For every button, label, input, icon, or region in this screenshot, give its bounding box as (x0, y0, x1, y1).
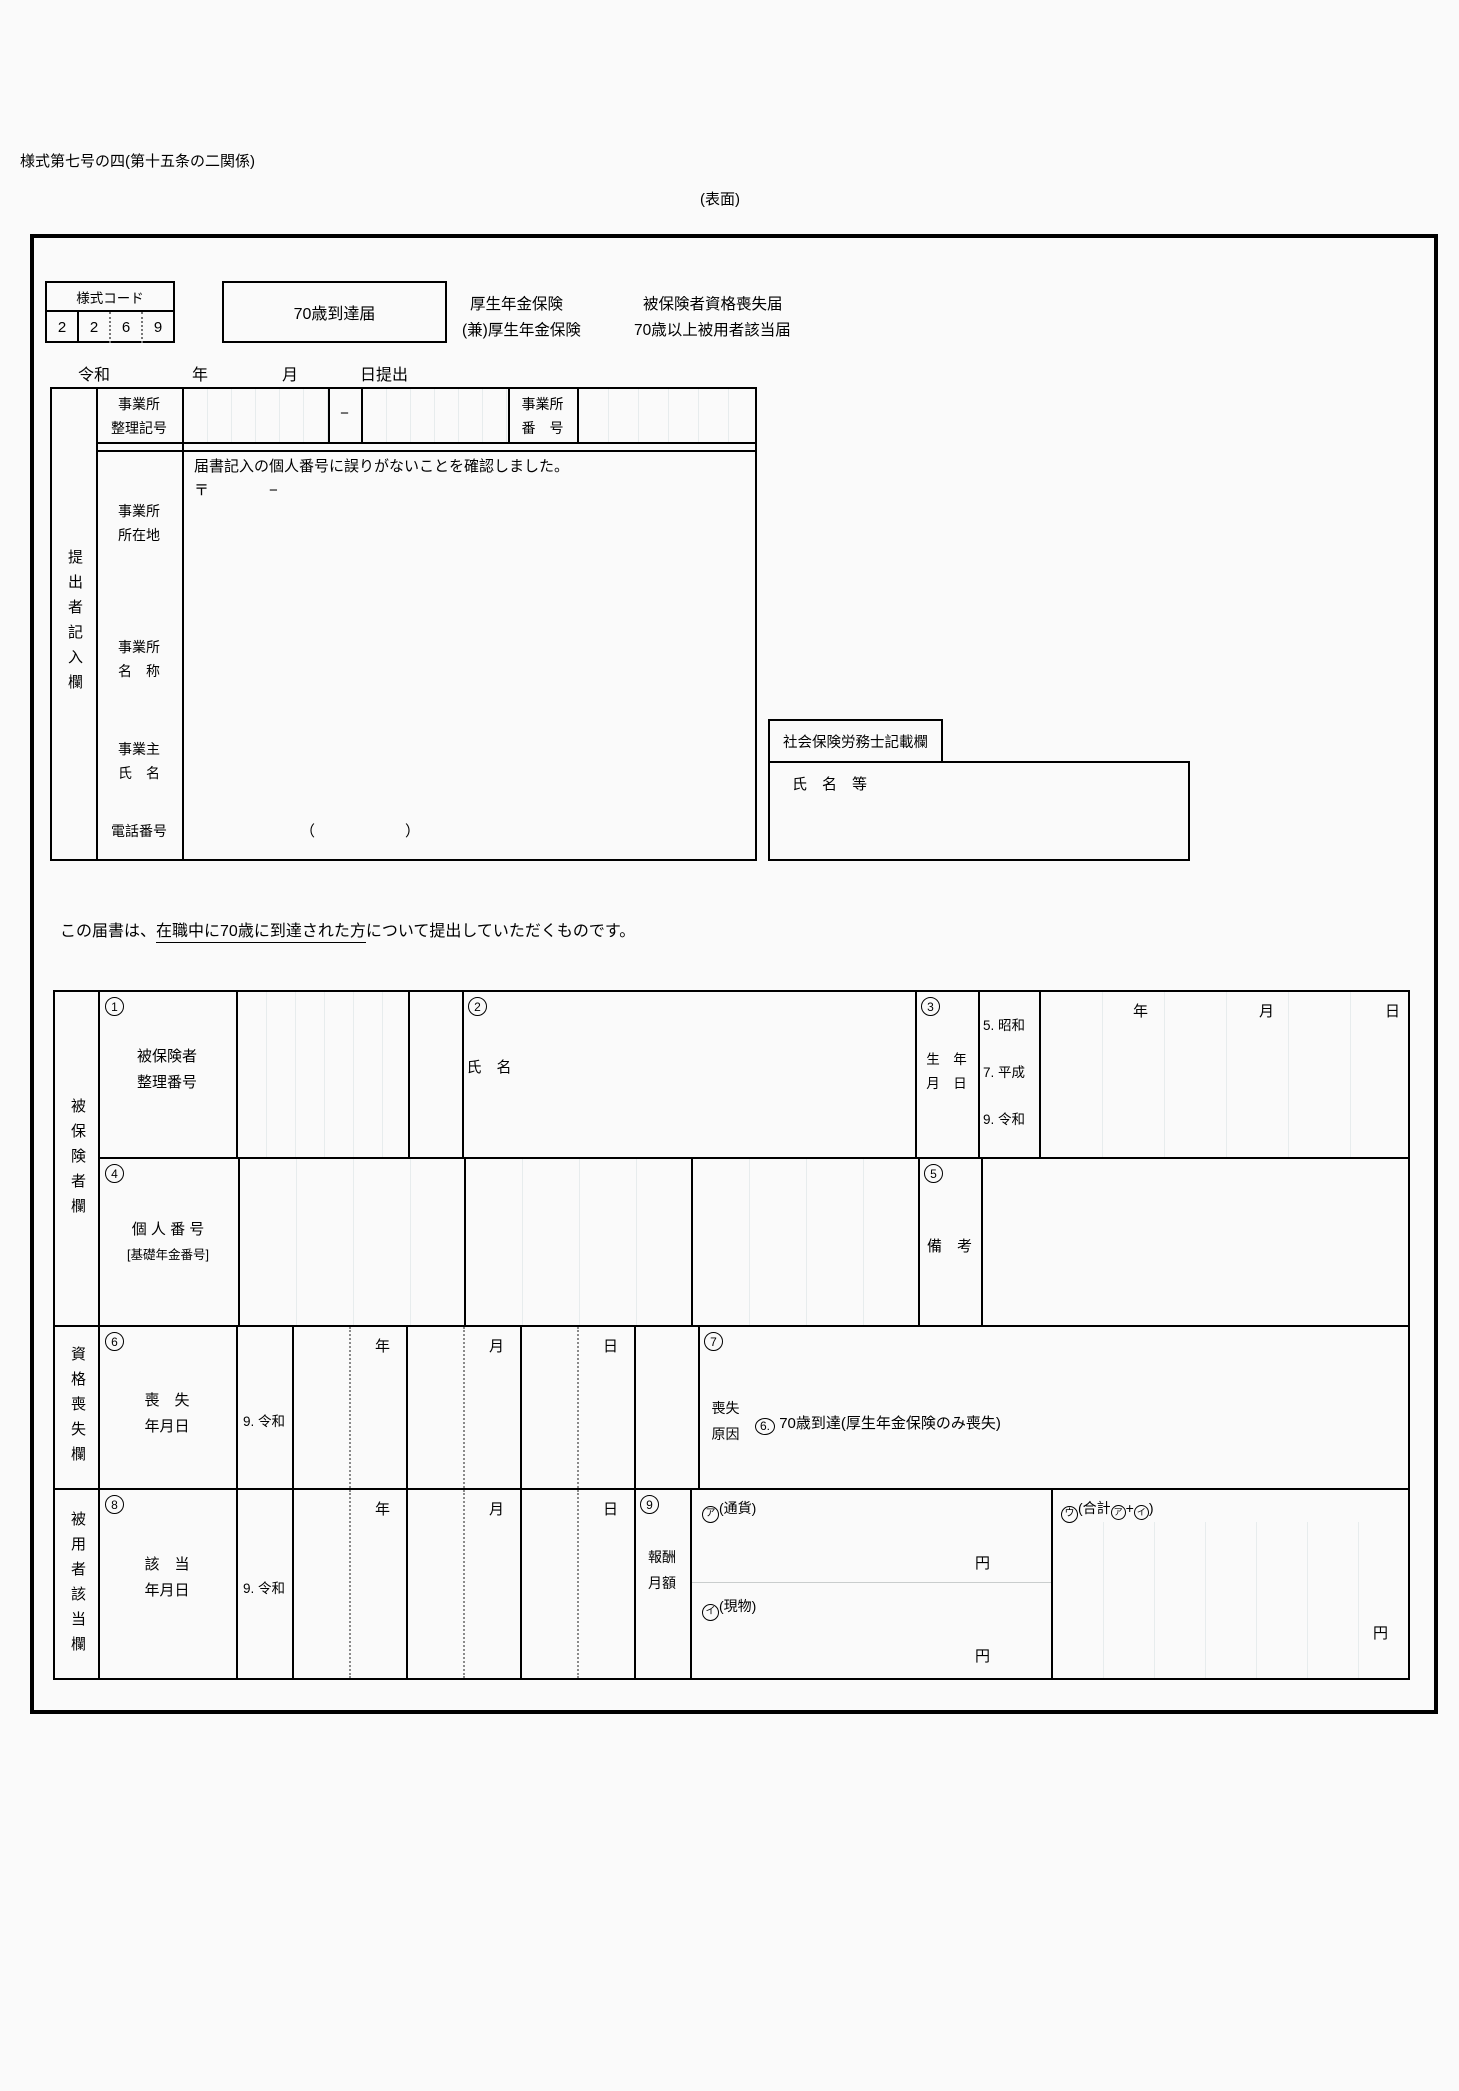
loss-reason-code: 6. (755, 1418, 775, 1435)
applicable-date-label: 該 当 年月日 (98, 1552, 236, 1604)
office-ref-code-label: 事業所 整理記号 (96, 392, 182, 440)
grid-line (96, 389, 98, 859)
currency-amount-yen: 円 (975, 1552, 990, 1573)
office-name-label: 事業所 名 称 (96, 635, 182, 683)
birth-date-label: 生 年 月 日 (915, 1048, 978, 1096)
loss-year-header: 年 (375, 1335, 390, 1356)
form-page: 様式第七号の四(第十五条の二関係) (表面) 様式コード 2 2 6 9 70歳… (0, 0, 1459, 2091)
grid-line (55, 1488, 1408, 1490)
office-ref-code-input-right[interactable] (363, 389, 508, 442)
circled-u-icon: ウ (1061, 1506, 1078, 1523)
notice-underlined: 在職中に70歳に到達された方 (156, 923, 366, 943)
birth-month-header: 月 (1259, 1000, 1274, 1021)
personal-number-input-1[interactable] (240, 1159, 464, 1325)
currency-amount-input[interactable] (692, 1512, 1051, 1582)
insured-name-input[interactable] (464, 992, 915, 1157)
notice-pre: この届書は、 (60, 923, 156, 940)
total-amount-label-pre: (合計 (1078, 1500, 1111, 1516)
loss-day-header: 日 (603, 1335, 618, 1356)
circled-1: 1 (105, 997, 124, 1016)
total-amount-yen: 円 (1373, 1622, 1388, 1643)
total-amount-label-post: ) (1149, 1500, 1154, 1516)
inkind-amount-yen: 円 (975, 1645, 990, 1666)
submit-date-day: 日提出 (360, 361, 408, 385)
side-label: (表面) (700, 188, 740, 209)
personal-number-input-3[interactable] (693, 1159, 918, 1325)
office-address-label: 事業所 所在地 (96, 499, 182, 547)
loss-month-header: 月 (489, 1335, 504, 1356)
circled-6: 6 (105, 1332, 124, 1351)
submit-date-month: 月 (282, 361, 298, 385)
submitter-table: 提出者記入欄 事業所 整理記号 − 事業所 番 号 届書記入の個人番号に誤りがな… (50, 387, 757, 861)
form-code-digit: 2 (47, 312, 77, 343)
birth-date-input[interactable] (1041, 992, 1408, 1157)
grid-line (96, 442, 755, 444)
sharoushi-box[interactable]: 氏 名 等 (768, 761, 1190, 861)
amount-divider-line (692, 1582, 1051, 1583)
insurance-line2-right: 70歳以上被用者該当届 (634, 318, 791, 340)
basic-pension-number-label: [基礎年金番号] (98, 1244, 238, 1263)
grid-line (634, 1327, 636, 1488)
total-amount-label: ウ(合計ア+イ) (1061, 1498, 1154, 1523)
applicable-year-header: 年 (375, 1498, 390, 1519)
total-amount-input[interactable] (1053, 1522, 1408, 1678)
circled-7: 7 (704, 1332, 723, 1351)
loss-reason-label: 喪失 原因 (698, 1395, 753, 1447)
office-name-input[interactable] (184, 635, 755, 735)
applicable-era-reiwa[interactable]: 9. 令和 (236, 1577, 292, 1597)
applicable-month-header: 月 (489, 1498, 504, 1519)
grid-line (96, 450, 755, 452)
insured-section-label: 被保険者欄 (67, 1098, 88, 1223)
form-code-box: 様式コード 2 2 6 9 (45, 281, 175, 343)
grid-line (408, 992, 410, 1157)
grid-line (978, 992, 980, 1157)
remarks-label: 備 考 (918, 1235, 981, 1256)
owner-name-input[interactable] (184, 737, 755, 817)
office-number-label: 事業所 番 号 (508, 392, 577, 440)
insurance-line2-left: (兼)厚生年金保険 (462, 318, 581, 340)
applicable-section-label: 被用者該当欄 (67, 1511, 88, 1661)
office-ref-code-dash: − (328, 405, 361, 422)
applicable-day-header: 日 (603, 1498, 618, 1519)
personal-number-input-2[interactable] (466, 1159, 691, 1325)
owner-name-label: 事業主 氏 名 (96, 737, 182, 785)
loss-date-label: 喪 失 年月日 (98, 1388, 236, 1440)
mynumber-confirm-note: 届書記入の個人番号に誤りがないことを確認しました。 (194, 455, 569, 476)
form-title-box: 70歳到達届 (222, 281, 447, 343)
circled-a-small-icon: ア (1111, 1505, 1126, 1520)
form-id-title: 様式第七号の四(第十五条の二関係) (20, 150, 255, 171)
grid-line (55, 1325, 1408, 1327)
remuneration-label: 報酬 月額 (634, 1544, 690, 1596)
circled-3: 3 (921, 997, 940, 1016)
circled-4: 4 (105, 1164, 124, 1183)
form-code-digit: 6 (109, 312, 141, 343)
birth-year-header: 年 (1133, 1000, 1148, 1021)
personal-number-label: 個 人 番 号 (98, 1218, 238, 1239)
insured-ref-number-label: 被保険者 整理番号 (98, 1044, 236, 1096)
loss-era-reiwa[interactable]: 9. 令和 (236, 1410, 292, 1430)
circled-9: 9 (640, 1495, 659, 1514)
era-option-showa[interactable]: 5. 昭和 (983, 1002, 1039, 1049)
notice-post: について提出していただくものです。 (366, 923, 635, 940)
era-option-reiwa[interactable]: 9. 令和 (983, 1096, 1039, 1143)
loss-reason-text: 70歳到達(厚生年金保険のみ喪失) (779, 1415, 1001, 1432)
form-code-digit: 9 (141, 312, 173, 343)
remarks-input[interactable] (983, 1159, 1408, 1325)
birth-era-options[interactable]: 5. 昭和 7. 平成 9. 令和 (983, 1002, 1039, 1143)
circled-5: 5 (924, 1164, 943, 1183)
loss-reason-option[interactable]: 6. 70歳到達(厚生年金保険のみ喪失) (755, 1412, 1001, 1435)
sharoushi-title-tab: 社会保険労務士記載欄 (768, 719, 943, 763)
insured-ref-number-input[interactable] (238, 992, 408, 1157)
sharoushi-name-label: 氏 名 等 (792, 773, 867, 794)
office-number-input[interactable] (579, 389, 755, 442)
office-ref-code-input-left[interactable] (184, 389, 328, 442)
inkind-amount-input[interactable] (692, 1610, 1051, 1678)
form-code-digit: 2 (77, 312, 109, 343)
insurance-line1-left: 厚生年金保険 (470, 292, 563, 314)
era-option-heisei[interactable]: 7. 平成 (983, 1049, 1039, 1096)
birth-day-header: 日 (1385, 1000, 1400, 1021)
tel-label: 電話番号 (96, 821, 182, 841)
grid-line (236, 1327, 238, 1488)
loss-section-label: 資格喪失欄 (67, 1346, 88, 1471)
form-code-label: 様式コード (47, 283, 173, 312)
total-amount-plus: + (1126, 1500, 1134, 1516)
insurance-line1-right: 被保険者資格喪失届 (643, 292, 783, 314)
submit-date-year: 年 (192, 361, 208, 385)
notice-sentence: この届書は、在職中に70歳に到達された方について提出していただくものです。 (60, 917, 635, 941)
tel-input[interactable] (184, 817, 755, 857)
submit-date-era: 令和 (78, 361, 110, 385)
circled-8: 8 (105, 1495, 124, 1514)
circled-i-small-icon: イ (1134, 1505, 1149, 1520)
postal-code-mark: 〒 − (194, 479, 278, 500)
submitter-section-label: 提出者記入欄 (64, 549, 85, 699)
office-address-input[interactable] (184, 504, 755, 634)
main-table: 被保険者欄 資格喪失欄 被用者該当欄 1 被保険者 整理番号 2 氏 名 3 生… (53, 990, 1410, 1680)
